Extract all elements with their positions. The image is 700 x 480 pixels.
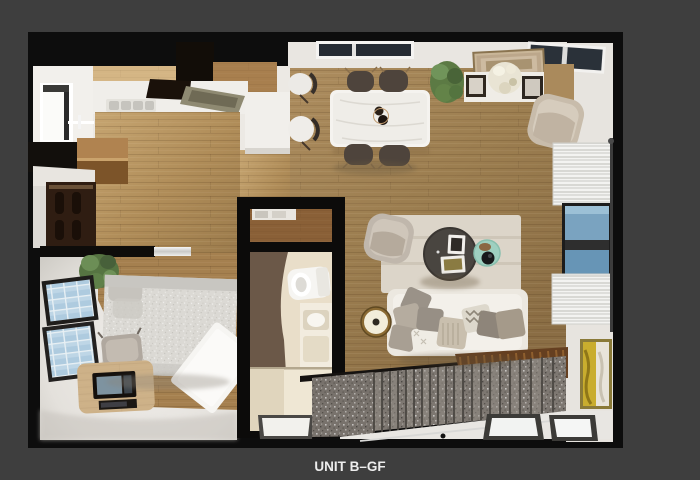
svg-text:UNIT B–GF: UNIT B–GF xyxy=(314,459,385,474)
